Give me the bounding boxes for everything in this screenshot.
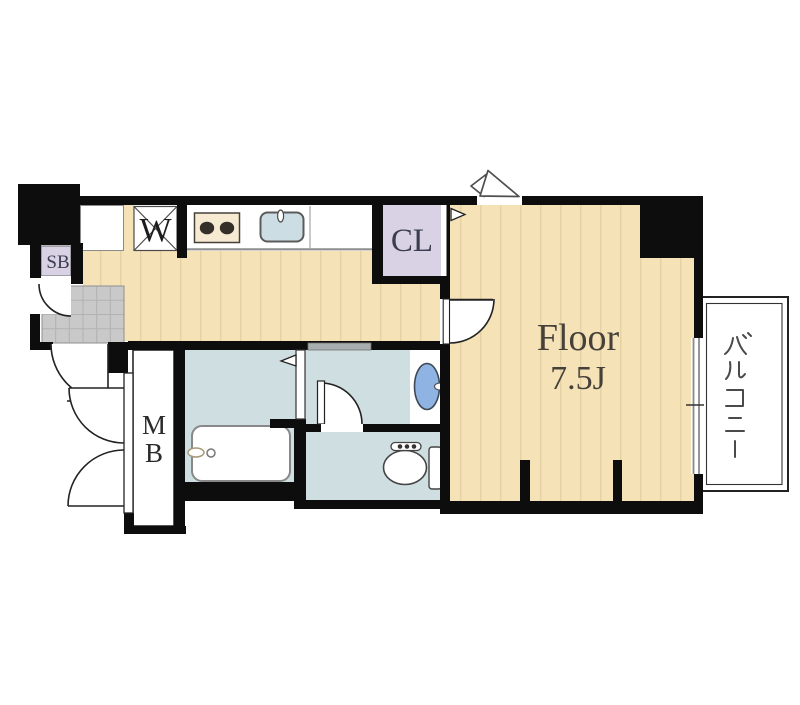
- svg-text:Floor: Floor: [537, 317, 620, 359]
- svg-text:7.5J: 7.5J: [550, 360, 606, 397]
- svg-text:CL: CL: [391, 223, 433, 259]
- svg-text:B: B: [145, 438, 163, 468]
- svg-text:M: M: [142, 410, 166, 440]
- svg-text:W: W: [139, 212, 172, 249]
- svg-text:SB: SB: [46, 252, 69, 273]
